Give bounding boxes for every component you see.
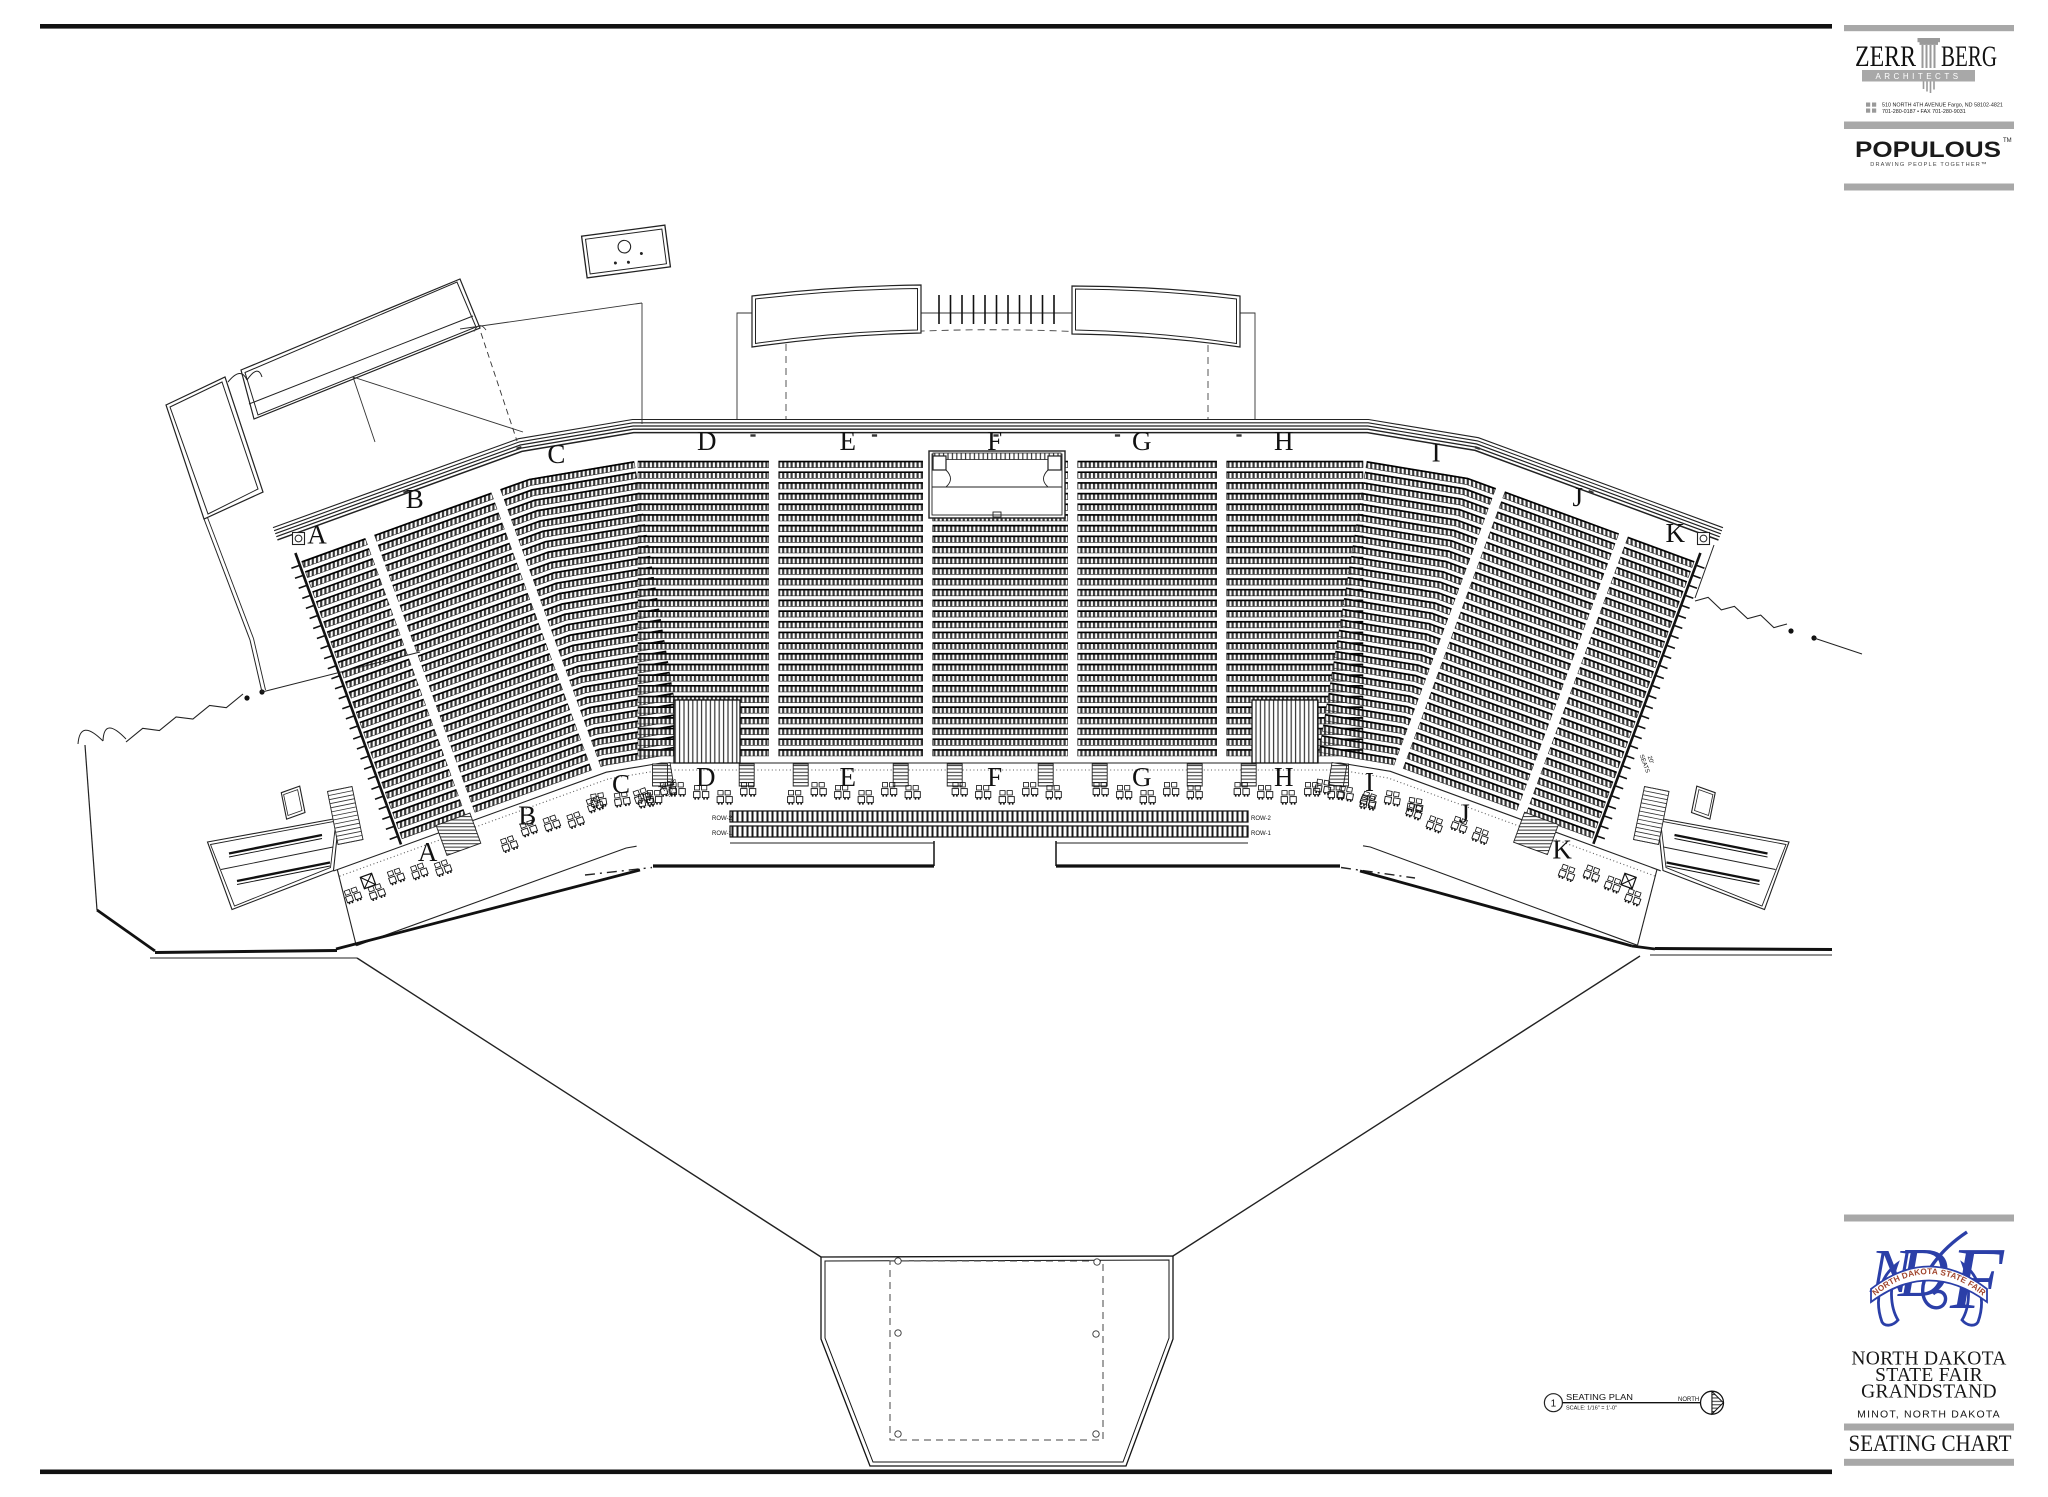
svg-text:ZERR: ZERR (1855, 40, 1916, 73)
svg-text:H: H (1274, 762, 1294, 792)
svg-text:G: G (1132, 762, 1152, 792)
svg-text:SCALE: 1/16" = 1'-0": SCALE: 1/16" = 1'-0" (1566, 1406, 1617, 1412)
svg-text:H: H (1274, 426, 1294, 456)
svg-text:SEATING CHART: SEATING CHART (1849, 1431, 2012, 1456)
svg-text:I: I (1432, 438, 1441, 468)
svg-text:NORTH: NORTH (1678, 1397, 1699, 1403)
svg-text:E: E (839, 426, 856, 456)
svg-text:D: D (697, 426, 717, 456)
svg-text:D: D (696, 762, 716, 792)
svg-text:TM: TM (2003, 138, 2012, 144)
svg-text:C: C (547, 439, 565, 469)
svg-text:A: A (307, 520, 327, 550)
svg-text:ROW-1: ROW-1 (1251, 831, 1272, 837)
svg-text:K: K (1552, 834, 1572, 864)
svg-text:SEATING PLAN: SEATING PLAN (1566, 1393, 1633, 1402)
svg-text:J: J (1572, 482, 1583, 512)
svg-text:I: I (1365, 767, 1374, 797)
svg-text:ROW-1: ROW-1 (712, 831, 733, 837)
svg-text:C: C (612, 769, 630, 799)
svg-text:MINOT, NORTH DAKOTA: MINOT, NORTH DAKOTA (1857, 1409, 2001, 1421)
svg-text:F: F (987, 762, 1002, 792)
svg-text:G: G (1132, 426, 1152, 456)
svg-text:A: A (418, 837, 438, 867)
svg-text:J: J (1459, 799, 1470, 829)
svg-text:701-280-0187 • FAX 701-280-903: 701-280-0187 • FAX 701-280-9031 (1882, 109, 1966, 115)
svg-text:ROW-2: ROW-2 (1251, 816, 1272, 822)
svg-text:B: B (518, 801, 536, 831)
svg-text:ARCHITECTS: ARCHITECTS (1875, 72, 1961, 81)
svg-text:510 NORTH 4TH AVENUE Fargo, ND: 510 NORTH 4TH AVENUE Fargo, ND 58102-482… (1882, 103, 2003, 109)
svg-text:ROW-2: ROW-2 (712, 816, 733, 822)
svg-text:F: F (987, 426, 1002, 456)
svg-text:K: K (1666, 518, 1686, 548)
svg-text:BERG: BERG (1941, 40, 1997, 73)
svg-text:DRAWING PEOPLE TOGETHER™: DRAWING PEOPLE TOGETHER™ (1870, 162, 1988, 168)
svg-text:GRANDSTAND: GRANDSTAND (1861, 1382, 1997, 1403)
svg-text:E: E (839, 762, 856, 792)
svg-text:1: 1 (1551, 1399, 1557, 1410)
svg-text:POPULOUS: POPULOUS (1855, 137, 2001, 162)
svg-text:B: B (406, 484, 424, 514)
